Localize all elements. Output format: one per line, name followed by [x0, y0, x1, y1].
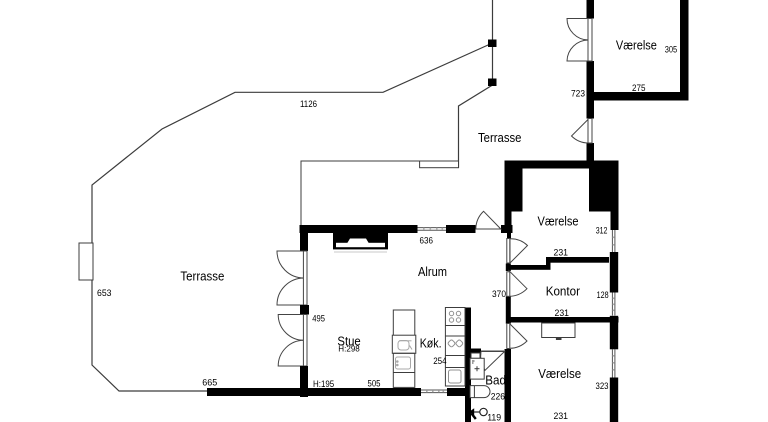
svg-text:H:195: H:195: [313, 379, 334, 390]
svg-text:665: 665: [202, 378, 217, 389]
svg-text:305: 305: [665, 45, 678, 56]
svg-text:653: 653: [97, 288, 112, 299]
svg-text:636: 636: [420, 236, 434, 247]
svg-text:128: 128: [597, 290, 609, 301]
svg-text:231: 231: [554, 411, 569, 422]
svg-text:495: 495: [312, 314, 325, 325]
svg-text:Køk.: Køk.: [420, 336, 442, 350]
svg-text:723: 723: [571, 89, 585, 100]
svg-text:Bad: Bad: [485, 374, 506, 388]
svg-text:H:298: H:298: [338, 345, 360, 354]
svg-text:254: 254: [433, 356, 446, 367]
svg-text:370: 370: [492, 289, 506, 300]
svg-text:231: 231: [554, 248, 569, 259]
svg-text:Værelse: Værelse: [616, 39, 657, 53]
svg-text:Værelse: Værelse: [538, 215, 579, 229]
svg-text:312: 312: [596, 226, 608, 237]
svg-text:231: 231: [555, 308, 570, 319]
svg-text:Terrasse: Terrasse: [478, 131, 522, 145]
svg-text:226: 226: [491, 392, 505, 403]
svg-text:Kontor: Kontor: [546, 285, 580, 299]
svg-text:119: 119: [487, 413, 501, 422]
svg-text:Terrasse: Terrasse: [180, 269, 224, 283]
svg-text:275: 275: [632, 83, 646, 94]
svg-text:1126: 1126: [300, 99, 317, 110]
svg-text:Værelse: Værelse: [538, 367, 581, 381]
svg-text:323: 323: [596, 381, 609, 392]
svg-text:Alrum: Alrum: [418, 265, 447, 279]
svg-text:505: 505: [368, 379, 381, 390]
